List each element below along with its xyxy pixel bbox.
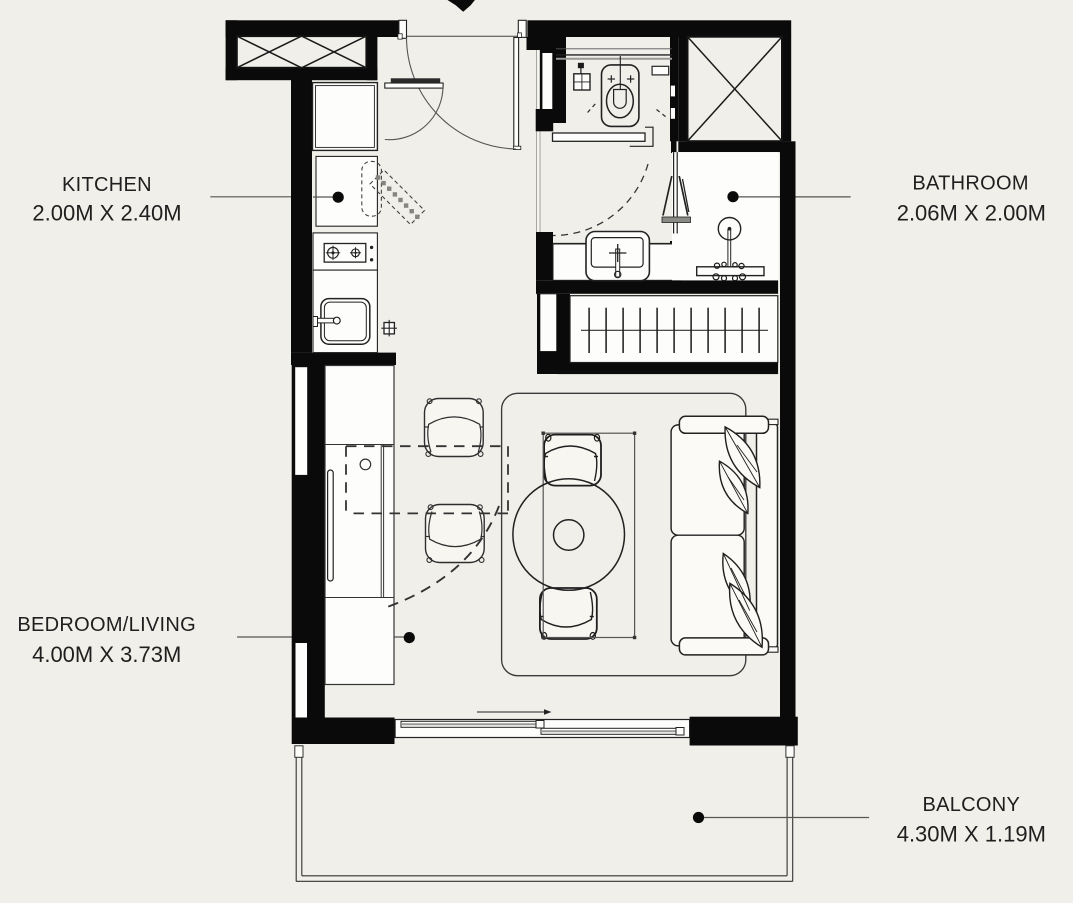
svg-text:4.00M X 3.73M: 4.00M X 3.73M xyxy=(32,642,181,667)
svg-text:BEDROOM/LIVING: BEDROOM/LIVING xyxy=(17,614,196,636)
svg-text:4.30M X 1.19M: 4.30M X 1.19M xyxy=(897,821,1046,846)
svg-text:2.06M X 2.00M: 2.06M X 2.00M xyxy=(897,201,1046,226)
svg-text:BATHROOM: BATHROOM xyxy=(912,173,1028,195)
svg-text:KITCHEN: KITCHEN xyxy=(62,174,152,196)
svg-text:2.00M X 2.40M: 2.00M X 2.40M xyxy=(32,201,181,226)
svg-text:BALCONY: BALCONY xyxy=(922,794,1020,816)
